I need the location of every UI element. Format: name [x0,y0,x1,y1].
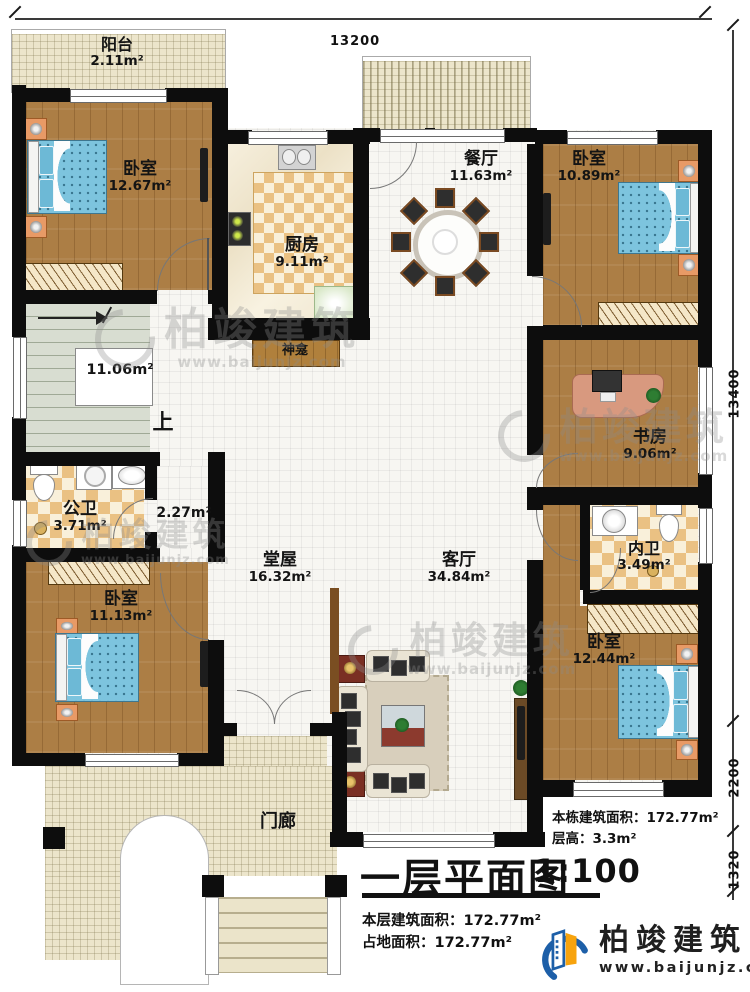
plan-scale: 1:100 [534,852,641,890]
floor-plan-page: 阳台 2.11m² 卧室 12.67m² 厨房 9.11m² 餐厅 11.63m… [0,0,750,992]
pillow [675,220,690,248]
room-label-bedroom2: 卧室 10.89m² [558,150,621,184]
wardrobe [587,604,700,634]
stat-line: 层高：3.3m² [552,829,719,850]
stat-line: 本层建筑面积：172.77m² [362,910,541,932]
stats-right: 本栋建筑面积：172.77m² 层高：3.3m² [552,808,719,850]
tv [517,706,525,760]
wall-segment [208,452,225,466]
room-name: 阳台 [90,36,143,54]
room-label-dining: 餐厅 11.63m² [450,150,513,184]
sofa-cushion [391,777,407,793]
washer-drum [84,465,106,487]
kitchen-cabinet [314,286,356,321]
room-name: 神龛 [282,344,308,359]
stat-label: 本栋建筑面积： [552,810,647,826]
room-name: 厨房 [275,236,328,255]
company-logo-icon [533,922,591,980]
wall-segment [527,780,575,797]
porch-steps [217,897,327,973]
bed [618,665,700,739]
window [699,367,713,475]
wall-segment [218,723,237,736]
room-area: 12.67m² [109,179,172,194]
dining-table-center [432,229,458,255]
corridor-area-label: 2.27m² [156,506,211,522]
wall-segment [527,560,543,847]
sofa-cushion [409,773,425,789]
wall-segment [12,88,70,102]
pillow [675,188,690,216]
oval-sink [118,466,146,485]
stat-label: 本层建筑面积： [362,913,464,929]
kitchen-rug [253,172,355,294]
wall-segment [583,590,712,604]
stove-burner [232,230,243,241]
pillow [39,179,54,208]
wall-segment [208,548,225,562]
wall-segment [12,753,85,766]
bed-headboard [56,634,67,701]
sofa-cushion [409,656,425,672]
sofa-cushion [391,660,407,676]
company-logo-text: 柏竣建筑 www.baijunjz.com [599,926,750,976]
porch-step-rail [205,897,219,975]
sofa-cushion [373,656,389,672]
room-label-shrine: 神龛 [282,344,308,359]
pillow [673,704,688,733]
porch-arch-cutout [120,815,209,985]
keyboard [600,392,616,402]
floor-drain [34,522,47,535]
room-name: 书房 [623,428,676,447]
stove-burner [232,216,243,227]
wall-segment [310,723,332,736]
porch-floor [222,736,327,768]
nightstand [676,644,698,664]
sofa-cushion [373,773,389,789]
company-logo: 柏竣建筑 www.baijunjz.com [533,922,750,980]
door-leaf [207,238,209,290]
room-label-living: 客厅 34.84m² [428,551,491,585]
stat-line: 占地面积：172.77m² [362,932,541,954]
wall-segment [332,712,347,847]
pillow [67,668,82,696]
room-name: 门廊 [260,812,296,832]
wall-segment [208,318,370,340]
wall-segment [12,290,157,304]
pillow [67,638,82,666]
porch-floor [45,876,120,960]
wall-segment [208,640,224,766]
nightstand [56,704,78,721]
wall-segment [527,144,543,276]
pillow [39,146,54,175]
wall-segment [580,505,590,590]
dimension-value-right-mid: 2200 [728,748,743,808]
wall-segment [177,753,224,766]
dining-chair [435,188,455,208]
company-name: 柏竣建筑 [599,926,750,956]
room-name: 卧室 [573,633,636,652]
bed-sheet-fold [54,141,70,211]
dimension-tick [9,6,22,19]
wall-segment [212,130,252,144]
room-label-hall: 堂屋 16.32m² [249,551,312,585]
room-area: 11.13m² [90,609,153,624]
room-label-balcony: 阳台 2.11m² [90,36,143,69]
bed-sheet-fold [657,666,673,736]
wood-partition [330,588,339,714]
porch-step-rail [327,897,341,975]
window [70,89,167,103]
company-url: www.baijunjz.com [599,961,750,976]
wall-segment [503,128,537,142]
bed [618,182,702,254]
window [567,131,658,145]
porch-pillar [202,875,224,897]
room-name: 公卫 [53,500,106,519]
wall-segment [353,128,369,288]
dimension-value-top: 13200 [330,34,380,49]
wall-segment [493,832,545,847]
room-name: 堂屋 [249,551,312,570]
sink-basin [297,149,311,165]
room-label-inner-bath: 内卫 3.49m² [617,540,670,573]
window [248,131,328,145]
room-area: 3.71m² [53,519,106,534]
desk-plant [646,388,661,403]
wall-segment [12,548,160,562]
title-underline [362,893,600,898]
nightstand [678,254,700,276]
room-label-public-bath: 公卫 3.71m² [53,500,106,534]
terrace-floor [363,57,530,132]
end-table-plant [344,662,356,674]
stairs-up-label: 上 [153,411,174,435]
dining-chair [479,232,499,252]
window [573,782,664,797]
window [13,337,27,419]
stat-value: 3.3m² [593,831,637,847]
background-patch [228,96,363,128]
coffee-table-plant [395,718,409,732]
stat-label: 占地面积： [362,935,435,951]
computer-monitor [592,370,622,392]
room-name: 卧室 [90,590,153,609]
room-label-porch: 门廊 [260,812,296,832]
bed [27,140,107,214]
room-area: 34.84m² [428,570,491,585]
dimension-tick [699,6,712,19]
dimension-value-right-main: 13400 [728,359,743,429]
dimension-line-top [15,18,712,20]
dimension-value-right-bottom: 1320 [728,840,743,900]
sink-basin [282,149,296,165]
room-name: 内卫 [617,540,670,558]
room-area: 10.89m² [558,169,621,184]
stat-value: 172.77m² [647,810,719,826]
stats-left: 本层建筑面积：172.77m² 占地面积：172.77m² [362,910,541,954]
wall-segment [528,487,712,505]
room-area: 16.32m² [249,570,312,585]
up-text: 上 [153,411,174,435]
wall-segment [330,832,363,847]
porch-pillar [43,827,65,849]
sofa-cushion [345,747,361,763]
room-area: 11.06m² [86,362,153,378]
room-label-bedroom4: 卧室 11.13m² [90,590,153,624]
wall-segment [363,128,380,142]
dining-chair [435,276,455,296]
room-area: 2.27m² [156,506,211,522]
room-label-bedroom3: 卧室 12.44m² [573,633,636,667]
background-patch [527,96,712,130]
porch-pillar [325,875,347,897]
room-label-kitchen: 厨房 9.11m² [275,236,328,270]
room-area: 9.11m² [275,255,328,270]
stat-line: 本栋建筑面积：172.77m² [552,808,719,829]
room-area: 3.49m² [617,558,670,573]
nightstand [56,618,78,634]
wall-segment [145,466,157,500]
room-area: 9.06m² [623,447,676,462]
pillow [673,671,688,700]
window [380,129,505,143]
stat-label: 层高： [552,831,593,847]
room-area: 11.63m² [450,169,513,184]
sofa-top [366,650,430,682]
sofa-cushion [341,693,357,709]
sofa-bottom [366,764,430,798]
nightstand [25,118,47,140]
wall-segment [662,780,712,797]
room-area: 2.11m² [90,54,143,69]
stair-direction-arrow [38,317,98,319]
wall-segment [527,326,543,455]
wall-segment [535,130,567,144]
tv [200,148,208,202]
round-sink [602,509,626,533]
bed-headboard [28,141,39,213]
wardrobe [48,560,150,585]
room-label-bedroom1: 卧室 12.67m² [109,160,172,194]
wall-segment [212,88,228,318]
nightstand [678,160,700,182]
tv [543,193,551,245]
room-name: 卧室 [558,150,621,169]
room-name: 客厅 [428,551,491,570]
room-name: 卧室 [109,160,172,179]
bed [55,633,139,702]
wall-segment [12,452,160,466]
dining-chair [391,232,411,252]
stat-value: 172.77m² [464,913,541,929]
wardrobe [25,263,123,291]
window [85,754,179,767]
nightstand [25,216,47,238]
stairs-area-label: 11.06m² [86,362,153,378]
room-name: 餐厅 [450,150,513,169]
bed-sheet-fold [659,183,675,251]
window [13,500,27,547]
wall-segment [543,325,712,340]
sofa-cushion [345,711,361,727]
window [699,508,713,564]
wall-segment [12,545,26,766]
bed-sheet-fold [82,634,98,699]
room-label-study: 书房 9.06m² [623,428,676,462]
nightstand [676,740,698,760]
room-area: 12.44m² [573,652,636,667]
wall-segment [208,290,225,304]
stat-value: 172.77m² [435,935,512,951]
